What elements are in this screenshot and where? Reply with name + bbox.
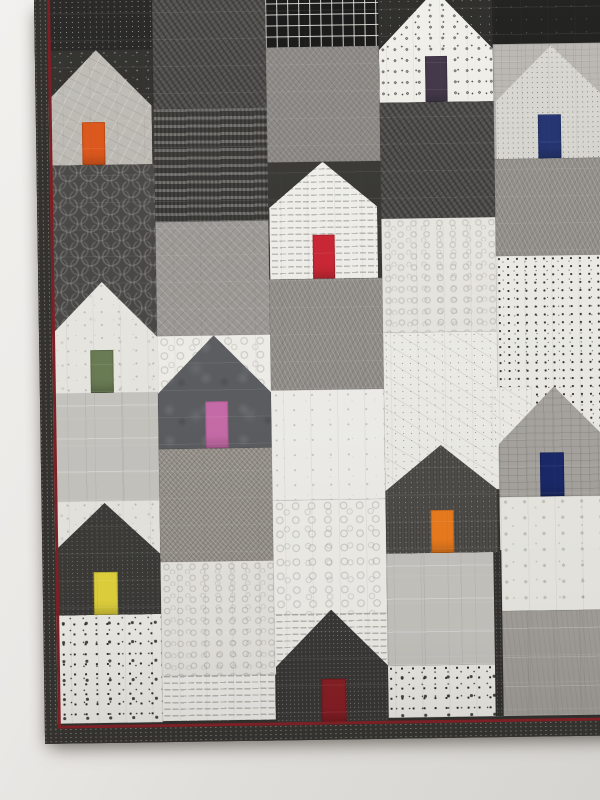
patch-light-gray-panel xyxy=(386,550,500,666)
patch-tweed-print xyxy=(159,448,274,563)
patch-gray-panel xyxy=(501,609,600,716)
house-red-door xyxy=(268,161,378,280)
patch-white-floral-print xyxy=(499,495,600,611)
patch-black-dot-print xyxy=(34,0,153,53)
patch-dark-twill-print xyxy=(380,101,496,219)
photo-of-quilt-on-wall: { "scene": { "subject": "modern patchwor… xyxy=(0,0,600,800)
patch-gray-crosshatch-panel xyxy=(155,221,270,337)
yellow-door xyxy=(94,572,119,615)
patch-light-gray-panel xyxy=(48,390,160,506)
bright-orange-door xyxy=(431,510,455,553)
patch-loop-print xyxy=(160,561,275,677)
orange-door xyxy=(82,122,106,165)
patch-loop-print xyxy=(381,217,497,333)
pink-door xyxy=(205,401,229,448)
patch-white-squares-print xyxy=(273,499,388,615)
patch-white-toile-print xyxy=(271,389,386,501)
maroon-door xyxy=(321,678,347,722)
patch-medium-gray-print xyxy=(266,46,381,163)
green-door xyxy=(90,350,114,393)
patch-near-black-print xyxy=(492,0,600,46)
patch-gray-scribble-print xyxy=(494,157,600,256)
patch-matchstick-print xyxy=(154,108,269,223)
navy-door xyxy=(540,452,565,496)
patch-gray-scribble-print xyxy=(269,278,384,391)
navy-door xyxy=(538,114,562,158)
patch-square-dot-print xyxy=(49,610,163,724)
patch-text-print xyxy=(162,674,276,721)
quilt xyxy=(34,0,600,744)
red-door xyxy=(313,235,336,279)
patch-grid-print xyxy=(265,0,379,48)
patch-square-dot-print xyxy=(388,664,503,718)
patch-dark-twill-print xyxy=(152,0,267,109)
purple-door xyxy=(425,56,448,102)
